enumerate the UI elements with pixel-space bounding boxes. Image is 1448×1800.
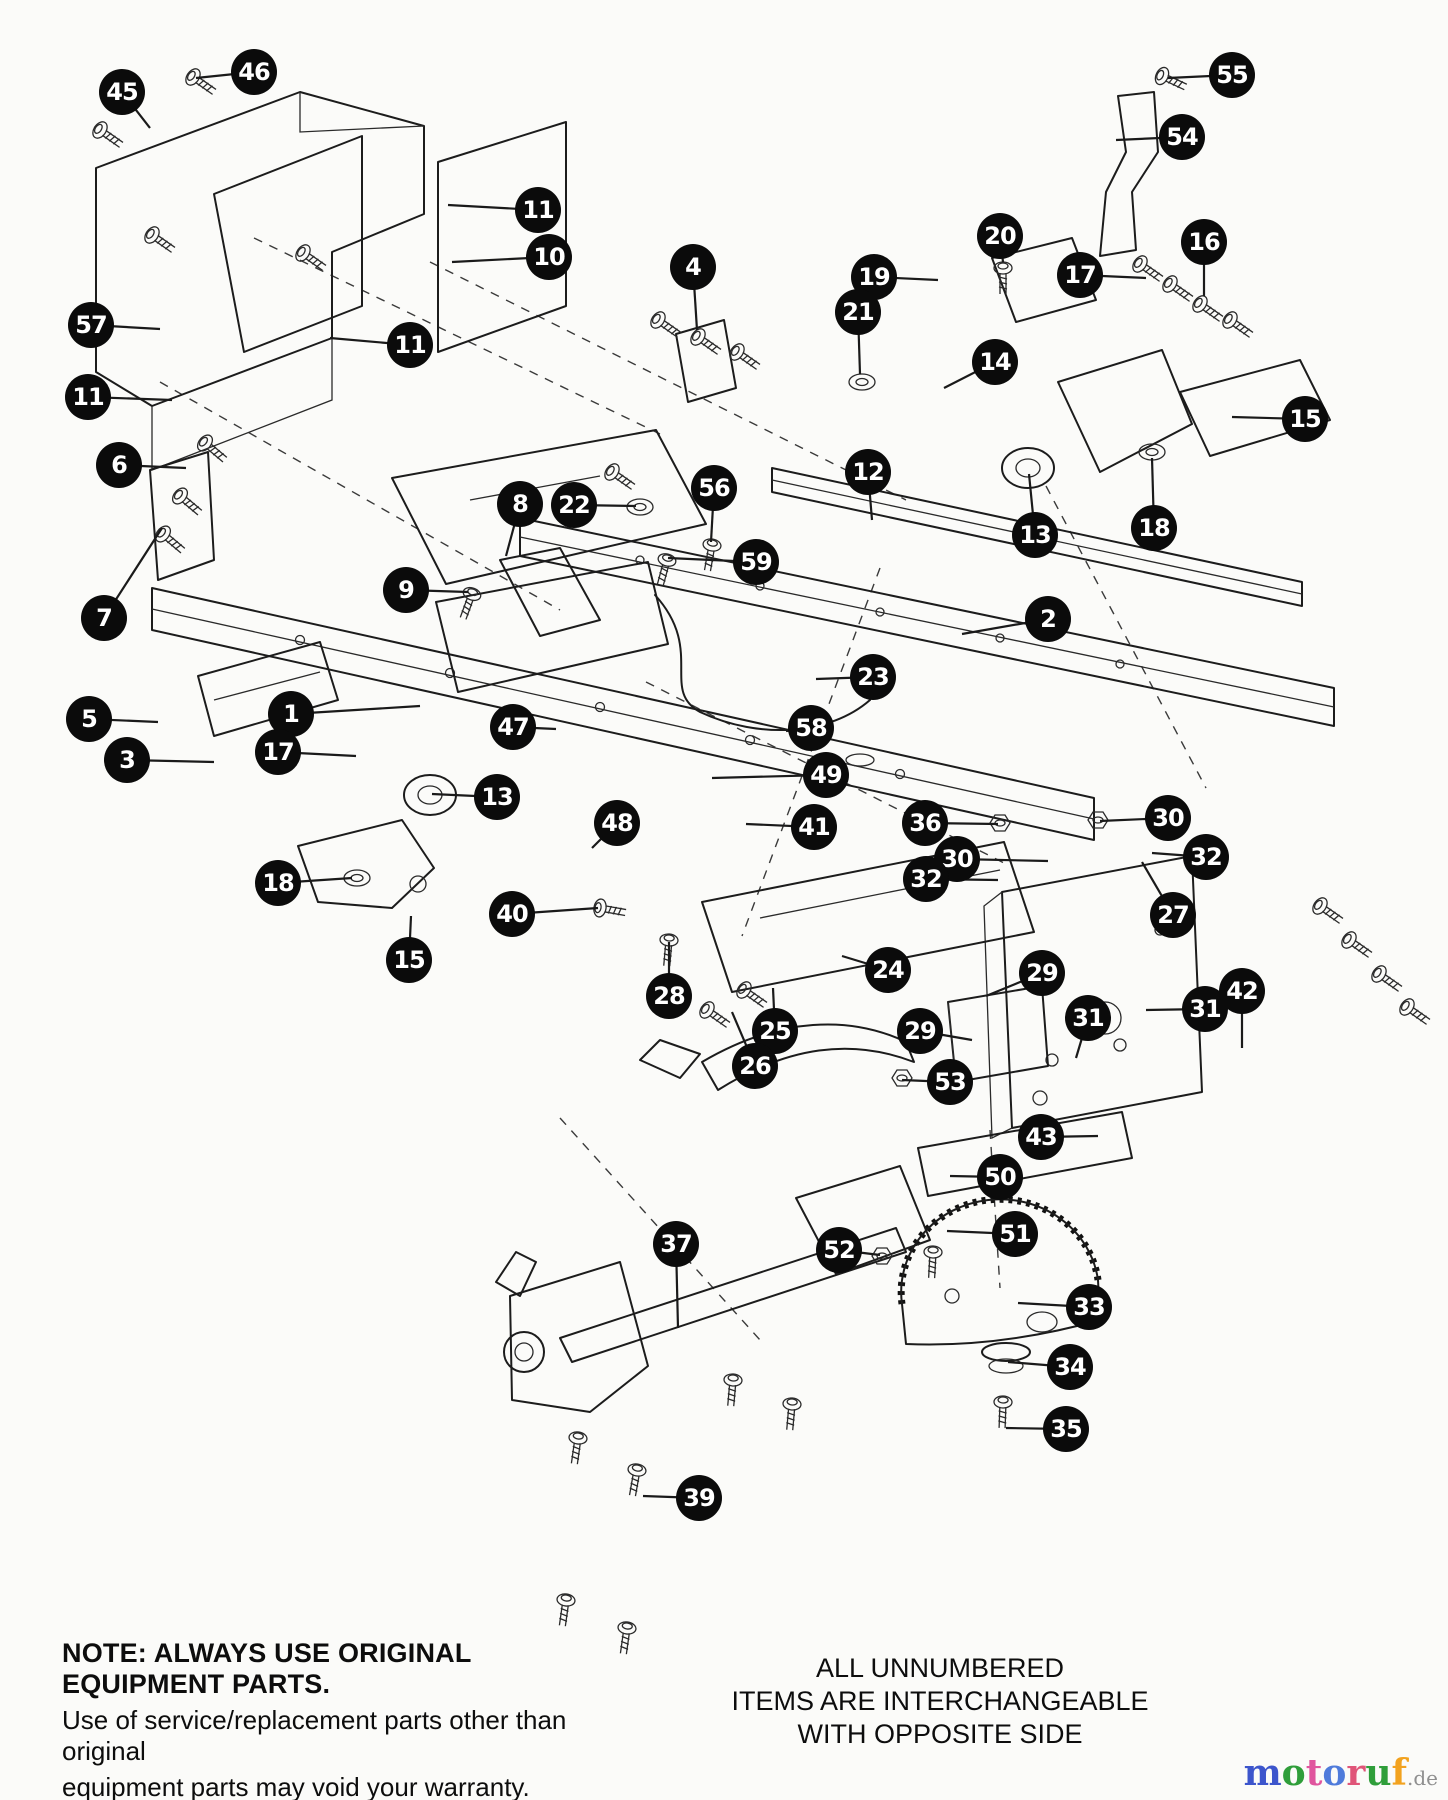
watermark-letter: o	[1322, 1752, 1346, 1794]
callout-11: 11	[387, 322, 433, 368]
callout-21: 21	[835, 289, 881, 335]
callout-30: 30	[1145, 795, 1191, 841]
callout-35: 35	[1043, 1406, 1089, 1452]
callout-48: 48	[594, 800, 640, 846]
callout-18: 18	[1131, 505, 1177, 551]
callout-41: 41	[791, 804, 837, 850]
interchange-line-2: ITEMS ARE INTERCHANGEABLE	[690, 1685, 1190, 1718]
watermark-suffix: .de	[1407, 1766, 1438, 1790]
original-parts-note: NOTE: ALWAYS USE ORIGINAL EQUIPMENT PART…	[62, 1638, 622, 1800]
callout-24: 24	[865, 947, 911, 993]
callout-57: 57	[68, 302, 114, 348]
callout-33: 33	[1066, 1284, 1112, 1330]
callout-46: 46	[231, 49, 277, 95]
watermark-letter: t	[1306, 1752, 1323, 1794]
note-line-3: equipment parts may void your warranty.	[62, 1772, 622, 1800]
interchangeable-note: ALL UNNUMBERED ITEMS ARE INTERCHANGEABLE…	[690, 1652, 1190, 1751]
callout-56: 56	[691, 465, 737, 511]
watermark-letter: f	[1392, 1752, 1408, 1794]
callout-17: 17	[1057, 252, 1103, 298]
note-line-2: Use of service/replacement parts other t…	[62, 1705, 622, 1767]
callout-29: 29	[1019, 950, 1065, 996]
callout-23: 23	[850, 654, 896, 700]
callout-51: 51	[992, 1211, 1038, 1257]
callout-6: 6	[96, 442, 142, 488]
callout-15: 15	[1282, 396, 1328, 442]
callout-45: 45	[99, 69, 145, 115]
callout-9: 9	[383, 567, 429, 613]
interchange-line-1: ALL UNNUMBERED	[690, 1652, 1190, 1685]
callout-49: 49	[803, 752, 849, 798]
callout-59: 59	[733, 539, 779, 585]
callout-37: 37	[653, 1221, 699, 1267]
parts-diagram-page: 4546555411102016191721457111411156128225…	[0, 0, 1448, 1800]
callout-14: 14	[972, 339, 1018, 385]
callout-32: 32	[1183, 834, 1229, 880]
callout-7: 7	[81, 595, 127, 641]
callout-15: 15	[386, 937, 432, 983]
watermark-letter: r	[1346, 1752, 1365, 1794]
callout-40: 40	[489, 891, 535, 937]
interchange-line-3: WITH OPPOSITE SIDE	[690, 1718, 1190, 1751]
callout-13: 13	[1012, 512, 1058, 558]
callout-34: 34	[1047, 1344, 1093, 1390]
callout-42: 42	[1219, 968, 1265, 1014]
callout-2: 2	[1025, 596, 1071, 642]
callout-27: 27	[1150, 892, 1196, 938]
callout-39: 39	[676, 1475, 722, 1521]
callout-53: 53	[927, 1059, 973, 1105]
callout-29: 29	[897, 1008, 943, 1054]
callout-20: 20	[977, 213, 1023, 259]
callout-5: 5	[66, 696, 112, 742]
callout-4: 4	[670, 244, 716, 290]
callout-12: 12	[845, 449, 891, 495]
callout-22: 22	[551, 482, 597, 528]
note-headline: NOTE: ALWAYS USE ORIGINAL EQUIPMENT PART…	[62, 1638, 622, 1700]
callout-47: 47	[490, 704, 536, 750]
callout-31: 31	[1065, 995, 1111, 1041]
watermark-letter: m	[1244, 1752, 1282, 1794]
callout-13: 13	[474, 774, 520, 820]
callout-58: 58	[788, 705, 834, 751]
callout-11: 11	[515, 187, 561, 233]
callout-11: 11	[65, 374, 111, 420]
callout-36: 36	[902, 800, 948, 846]
callout-50: 50	[977, 1154, 1023, 1200]
callout-leader-lines	[0, 0, 1448, 1800]
callout-18: 18	[255, 860, 301, 906]
callout-3: 3	[104, 737, 150, 783]
callout-10: 10	[526, 234, 572, 280]
watermark-letter: o	[1282, 1752, 1306, 1794]
callout-43: 43	[1018, 1114, 1064, 1160]
callout-32: 32	[903, 856, 949, 902]
watermark-letter: u	[1365, 1752, 1391, 1794]
callout-28: 28	[646, 973, 692, 1019]
callout-8: 8	[497, 481, 543, 527]
callout-26: 26	[732, 1043, 778, 1089]
callout-52: 52	[816, 1227, 862, 1273]
motoruf-watermark[interactable]: motoruf.de	[1244, 1755, 1438, 1796]
callout-55: 55	[1209, 52, 1255, 98]
callout-54: 54	[1159, 114, 1205, 160]
callout-16: 16	[1181, 219, 1227, 265]
callout-17: 17	[255, 729, 301, 775]
